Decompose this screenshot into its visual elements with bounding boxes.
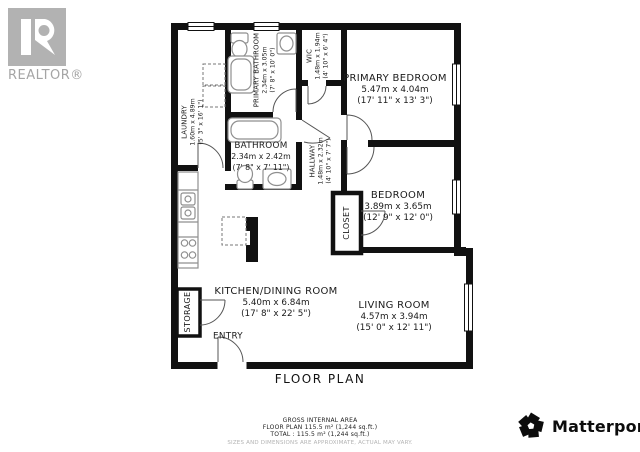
- room-label-closet: CLOSET: [342, 206, 352, 239]
- room-label-kitchen-dining: KITCHEN/DINING ROOM 5.40m x 6.84m (17' 8…: [214, 285, 337, 321]
- bathtub-icon: [228, 118, 281, 142]
- room-label-bedroom: BEDROOM 3.89m x 3.65m (12' 9" x 12' 0"): [363, 189, 433, 225]
- room-label-laundry: LAUNDRY 1.60m x 4.89m (5' 3" x 16' 1"): [181, 98, 206, 145]
- toilet-icon: [231, 33, 248, 58]
- room-label-primary-bathroom: PRIMARY BATHROOM 2.34m x 3.05m (7' 8" x …: [253, 33, 278, 107]
- page-title: FLOOR PLAN: [275, 372, 366, 386]
- room-label-bathroom: BATHROOM 2.34m x 2.42m (7' 8" x 7' 11"): [231, 141, 290, 173]
- floor-plan-page: LAUNDRY 1.60m x 4.89m (5' 3" x 16' 1") P…: [0, 0, 640, 452]
- matterport-logo: Matterport®: [516, 411, 640, 441]
- primary-bedroom-door: [347, 115, 372, 140]
- entry-opening: [218, 361, 247, 370]
- wic-door: [308, 86, 326, 104]
- island-dashed-icon: [222, 217, 246, 245]
- total-area: TOTAL : 115.5 m² (1,244 sq.ft.): [227, 431, 412, 438]
- room-label-entry: ENTRY: [213, 331, 243, 342]
- bathtub-icon: [228, 56, 254, 93]
- footer-area-summary: GROSS INTERNAL AREA FLOOR PLAN 115.5 m² …: [227, 417, 412, 447]
- laundry-door: [198, 143, 223, 168]
- realtor-logo-text: REALTOR®: [8, 68, 88, 83]
- realtor-logo: REALTOR®: [8, 8, 88, 83]
- sink-icon: [277, 33, 296, 54]
- bedroom-door: [347, 147, 374, 174]
- gross-internal-area-label: GROSS INTERNAL AREA: [227, 417, 412, 424]
- island-notch: [244, 231, 250, 245]
- room-label-hallway: HALLWAY 1.48m x 2.32m (4' 10" x 7' 7"): [309, 137, 334, 184]
- room-label-living-room: LIVING ROOM 4.57m x 3.94m (15' 0" x 12' …: [356, 299, 431, 335]
- washer-dryer-icon: [203, 64, 225, 107]
- disclaimer-text: SIZES AND DIMENSIONS ARE APPROXIMATE, AC…: [227, 439, 412, 447]
- matterport-logo-icon: [516, 411, 546, 441]
- room-label-primary-bedroom: PRIMARY BEDROOM 5.47m x 4.04m (17' 11" x…: [343, 72, 447, 108]
- realtor-logo-icon: [8, 8, 66, 66]
- room-label-storage: STORAGE: [183, 292, 193, 333]
- room-label-wic: WIC 1.48m x 1.94m (4' 10" x 6' 4"): [306, 32, 331, 79]
- floor-plan-area: FLOOR PLAN 115.5 m² (1,244 sq.ft.): [227, 424, 412, 431]
- matterport-logo-text: Matterport: [552, 417, 640, 436]
